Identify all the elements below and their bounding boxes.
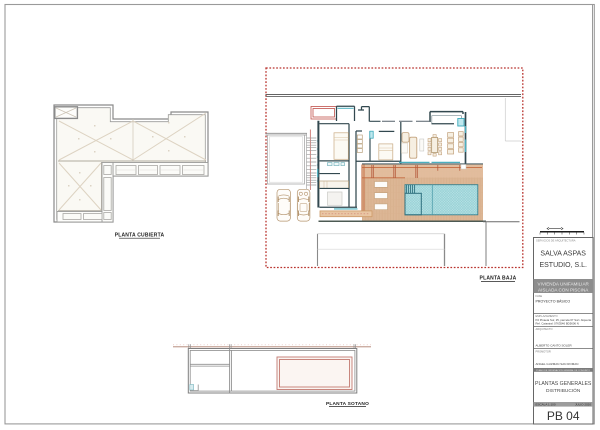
svg-text:ANGEL GUZMAN SAN ROMAN: ANGEL GUZMAN SAN ROMAN [536, 362, 579, 366]
svg-text:VIVIENDA UNIFAMILIAR: VIVIENDA UNIFAMILIAR [538, 281, 590, 286]
svg-text:ARQUITECTO: ARQUITECTO [536, 327, 553, 331]
svg-text:PROMOTOR: PROMOTOR [536, 350, 551, 354]
svg-text:PLANTA CUBIERTA: PLANTA CUBIERTA [115, 233, 165, 239]
svg-text:PLANTA SOTANO: PLANTA SOTANO [326, 401, 369, 407]
svg-text:AISLADA CON PISCINA: AISLADA CON PISCINA [538, 287, 589, 292]
svg-text:JULIO 2020: JULIO 2020 [575, 403, 591, 407]
svg-text:PLANO DE ORDENACION GENERAL DE: PLANO DE ORDENACION GENERAL DE CONJUNTO [536, 369, 590, 372]
svg-text:ESTUDIO, S.L.: ESTUDIO, S.L. [539, 262, 587, 269]
svg-text:DISTRIBUCIÓN: DISTRIBUCIÓN [546, 387, 581, 394]
svg-text:PLANTA BAJA: PLANTA BAJA [480, 276, 517, 282]
svg-text:FASE: FASE [536, 294, 543, 298]
svg-text:PB 04: PB 04 [547, 409, 580, 423]
svg-text:SERVICIOS DE ARQUITECTURA: SERVICIOS DE ARQUITECTURA [536, 239, 576, 243]
svg-text:PLANTAS GENERALES: PLANTAS GENERALES [535, 381, 592, 387]
svg-text:Ref. Catastral: 0763546 BD5606: Ref. Catastral: 0763546 BD5606 N [536, 322, 579, 326]
svg-text:SALVA ASPAS: SALVA ASPAS [540, 251, 586, 258]
svg-text:PROYECTO BÁSICO: PROYECTO BÁSICO [536, 300, 571, 304]
svg-text:ESCALA 1:100: ESCALA 1:100 [536, 403, 556, 407]
svg-text:ALBERTO CANTO SOLER: ALBERTO CANTO SOLER [536, 344, 573, 348]
